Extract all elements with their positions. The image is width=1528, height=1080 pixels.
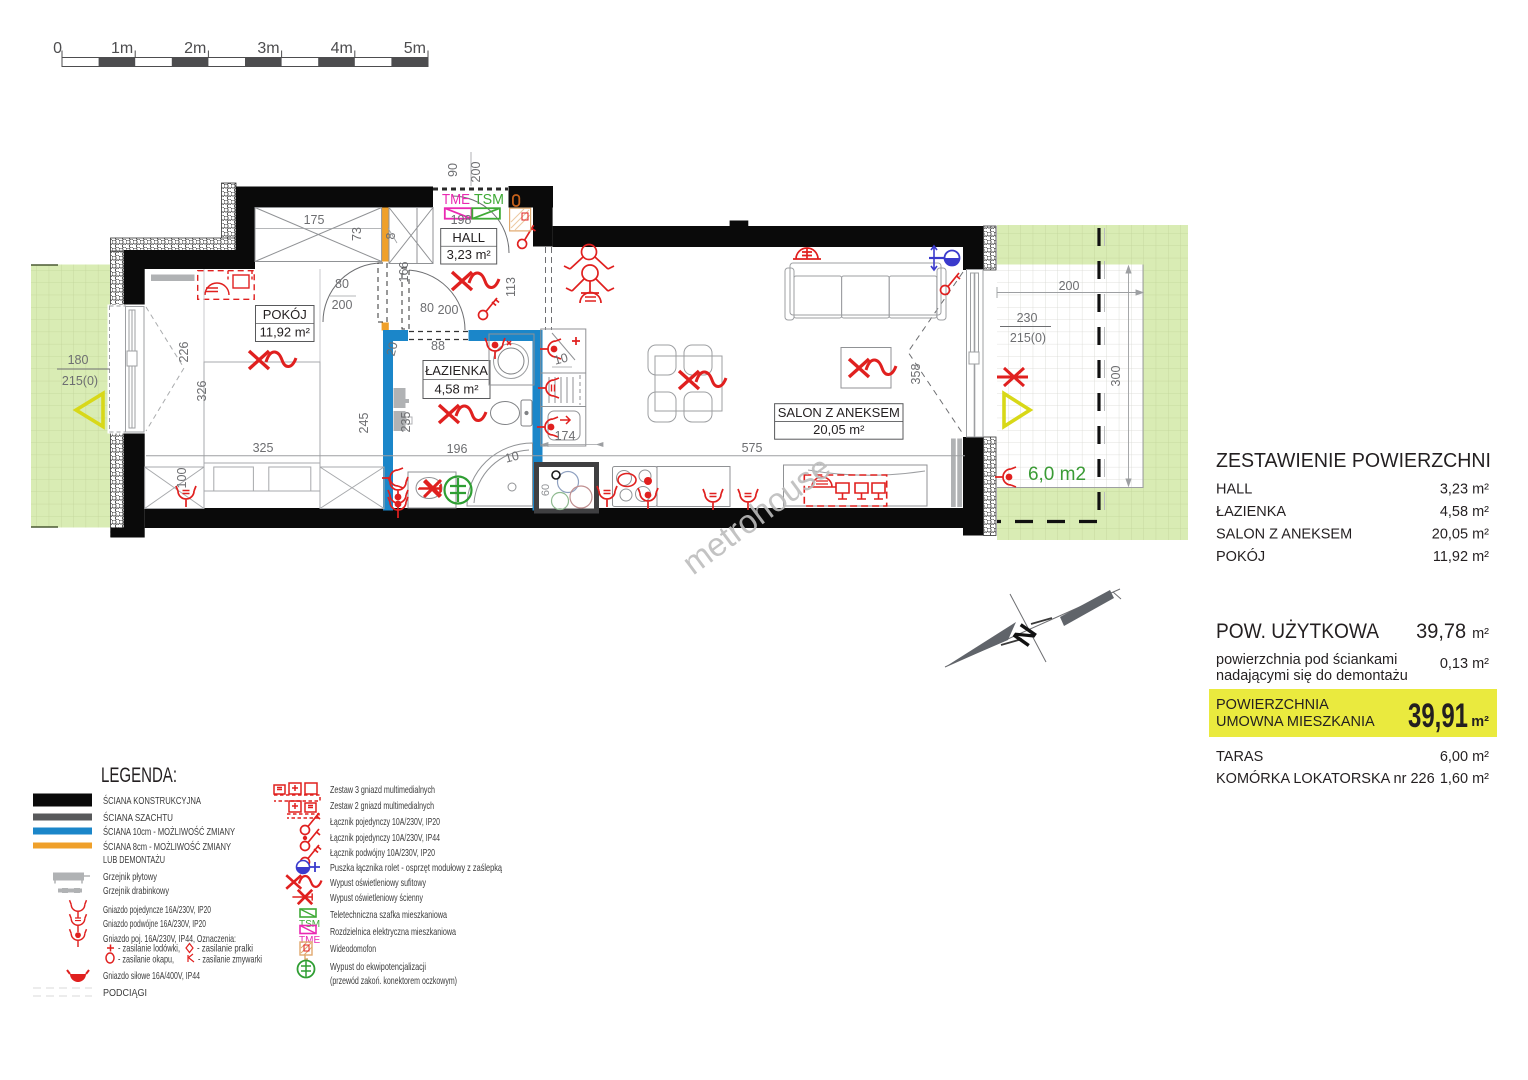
svg-text:100: 100: [175, 468, 189, 489]
svg-text:0,13 m²: 0,13 m²: [1440, 656, 1489, 672]
svg-text:SALON Z ANEKSEM: SALON Z ANEKSEM: [778, 405, 900, 420]
svg-text:2m: 2m: [184, 40, 206, 57]
svg-text:174: 174: [555, 429, 576, 443]
svg-text:ZESTAWIENIE POWIERZCHNI: ZESTAWIENIE POWIERZCHNI: [1216, 450, 1491, 472]
svg-text:PODCIĄGI: PODCIĄGI: [103, 987, 147, 999]
svg-text:Gniazdo pojedyncze 16A/230V, I: Gniazdo pojedyncze 16A/230V, IP20: [103, 904, 211, 916]
svg-text:UMOWNA MIESZKANIA: UMOWNA MIESZKANIA: [1216, 714, 1375, 730]
svg-text:nadającymi się do demontażu: nadającymi się do demontażu: [1216, 668, 1408, 684]
svg-text:ŚCIANA 8cm - MOŻLIWOŚĆ ZMIANY: ŚCIANA 8cm - MOŻLIWOŚĆ ZMIANY: [103, 840, 231, 853]
svg-text:20,05 m²: 20,05 m²: [1432, 527, 1489, 543]
svg-text:Gniazdo podwójne 16A/230V, IP2: Gniazdo podwójne 16A/230V, IP20: [103, 918, 206, 930]
svg-text:Rozdzielnica elektryczna miesz: Rozdzielnica elektryczna mieszkaniowa: [330, 926, 456, 938]
svg-text:POW. UŻYTKOWA: POW. UŻYTKOWA: [1216, 619, 1380, 643]
svg-text:Łącznik pojedynczy 10A/230V, I: Łącznik pojedynczy 10A/230V, IP20: [330, 816, 440, 828]
svg-text:180: 180: [68, 353, 89, 367]
svg-text:- zasilanie zmywarki: - zasilanie zmywarki: [198, 954, 262, 966]
svg-text:POKÓJ: POKÓJ: [1216, 548, 1265, 565]
svg-text:73: 73: [350, 227, 364, 241]
svg-text:20: 20: [384, 340, 401, 357]
svg-text:175: 175: [304, 213, 325, 227]
svg-text:ŚCIANA SZACHTU: ŚCIANA SZACHTU: [103, 811, 173, 824]
svg-text:39,78 m²: 39,78 m²: [1416, 619, 1489, 643]
svg-text:215(0): 215(0): [1010, 331, 1046, 345]
svg-text:Łącznik podwójny 10A/230V, IP2: Łącznik podwójny 10A/230V, IP20: [330, 847, 435, 859]
svg-text:4m: 4m: [331, 40, 353, 57]
svg-text:1,60 m²: 1,60 m²: [1440, 771, 1489, 787]
svg-text:0: 0: [53, 40, 62, 57]
svg-text:326: 326: [195, 381, 209, 402]
svg-text:- zasilanie okapu,: - zasilanie okapu,: [118, 954, 174, 966]
svg-text:198: 198: [451, 213, 472, 227]
svg-text:230: 230: [1017, 311, 1038, 325]
svg-text:3,23 m²: 3,23 m²: [447, 247, 492, 262]
svg-text:Puszka łącznika rolet - osprzę: Puszka łącznika rolet - osprzęt modułowy…: [330, 862, 502, 874]
svg-text:358: 358: [909, 364, 923, 385]
svg-text:4,58 m²: 4,58 m²: [1440, 504, 1489, 520]
svg-text:m²: m²: [1471, 714, 1489, 730]
svg-text:POKÓJ: POKÓJ: [263, 307, 307, 322]
svg-text:ŁAZIENKA: ŁAZIENKA: [1216, 504, 1286, 520]
svg-text:ŚCIANA KONSTRUKCYJNA: ŚCIANA KONSTRUKCYJNA: [103, 794, 201, 807]
svg-text:575: 575: [742, 441, 763, 455]
svg-text:Teletechniczna szafka mieszkan: Teletechniczna szafka mieszkaniowa: [330, 909, 447, 921]
svg-text:Wideodomofon: Wideodomofon: [330, 943, 376, 955]
svg-text:LUB DEMONTAŻU: LUB DEMONTAŻU: [103, 853, 165, 866]
svg-text:SALON Z ANEKSEM: SALON Z ANEKSEM: [1216, 527, 1352, 543]
svg-text:215(0): 215(0): [62, 374, 98, 388]
svg-text:11,92 m²: 11,92 m²: [1433, 549, 1489, 565]
svg-text:39,91: 39,91: [1408, 697, 1468, 735]
svg-text:200: 200: [1059, 279, 1080, 293]
svg-text:Zestaw 3 gniazd multimedialnyc: Zestaw 3 gniazd multimedialnych: [330, 784, 435, 796]
svg-text:Wypust oświetleniowy sufitowy: Wypust oświetleniowy sufitowy: [330, 877, 426, 889]
svg-text:TSM: TSM: [299, 919, 320, 930]
svg-text:TSM: TSM: [474, 191, 504, 208]
svg-text:Grzejnik drabinkowy: Grzejnik drabinkowy: [103, 885, 170, 897]
svg-text:200: 200: [332, 298, 353, 312]
svg-text:166: 166: [397, 262, 411, 283]
svg-text:88: 88: [431, 339, 445, 353]
svg-text:3m: 3m: [257, 40, 279, 57]
svg-text:KOMÓRKA LOKATORSKA nr 226: KOMÓRKA LOKATORSKA nr 226: [1216, 770, 1435, 787]
svg-text:235: 235: [399, 412, 413, 433]
svg-text:Wypust oświetleniowy ścienny: Wypust oświetleniowy ścienny: [330, 892, 423, 904]
svg-text:10: 10: [552, 351, 569, 368]
svg-text:(przewód zakoń. konektorem ocz: (przewód zakoń. konektorem oczkowym): [330, 975, 457, 987]
svg-text:Łącznik pojedynczy 10A/230V, I: Łącznik pojedynczy 10A/230V, IP44: [330, 832, 440, 844]
svg-text:powierzchnia pod ściankami: powierzchnia pod ściankami: [1216, 652, 1397, 668]
svg-text:HALL: HALL: [452, 230, 485, 245]
svg-text:1m: 1m: [111, 40, 133, 57]
svg-text:ŁAZIENKA: ŁAZIENKA: [425, 363, 488, 378]
svg-text:80: 80: [420, 301, 434, 315]
svg-text:80: 80: [335, 277, 349, 291]
svg-text:LEGENDA:: LEGENDA:: [101, 764, 177, 787]
svg-text:TARAS: TARAS: [1216, 749, 1263, 765]
svg-text:196: 196: [447, 442, 468, 456]
svg-text:3,23 m²: 3,23 m²: [1440, 482, 1489, 498]
svg-text:Wypust do ekwipotencjalizacji: Wypust do ekwipotencjalizacji: [330, 961, 426, 973]
svg-text:4,58 m²: 4,58 m²: [434, 382, 479, 397]
svg-text:Zestaw 2 gniazd multimedialnyc: Zestaw 2 gniazd multimedialnych: [330, 800, 434, 812]
svg-text:300: 300: [1109, 366, 1123, 387]
svg-text:226: 226: [177, 342, 191, 363]
svg-text:60: 60: [540, 484, 552, 496]
svg-text:245: 245: [357, 413, 371, 434]
svg-text:TME: TME: [442, 191, 470, 208]
svg-text:Gniazdo siłowe 16A/400V, IP44: Gniazdo siłowe 16A/400V, IP44: [103, 970, 200, 982]
svg-text:11,92 m²: 11,92 m²: [260, 325, 311, 340]
svg-text:5m: 5m: [404, 40, 426, 57]
svg-text:ŚCIANA 10cm - MOŻLIWOŚĆ ZMIANY: ŚCIANA 10cm - MOŻLIWOŚĆ ZMIANY: [103, 825, 235, 838]
svg-text:Grzejnik płytowy: Grzejnik płytowy: [103, 871, 158, 883]
svg-text:325: 325: [253, 441, 274, 455]
svg-text:6,00 m²: 6,00 m²: [1440, 749, 1489, 765]
svg-text:200: 200: [438, 303, 459, 317]
svg-text:6,0 m2: 6,0 m2: [1028, 464, 1086, 485]
svg-text:POWIERZCHNIA: POWIERZCHNIA: [1216, 697, 1329, 713]
svg-text:20,05 m²: 20,05 m²: [813, 422, 865, 437]
svg-text:90: 90: [446, 163, 460, 177]
svg-text:113: 113: [504, 277, 518, 297]
svg-text:HALL: HALL: [1216, 482, 1252, 498]
